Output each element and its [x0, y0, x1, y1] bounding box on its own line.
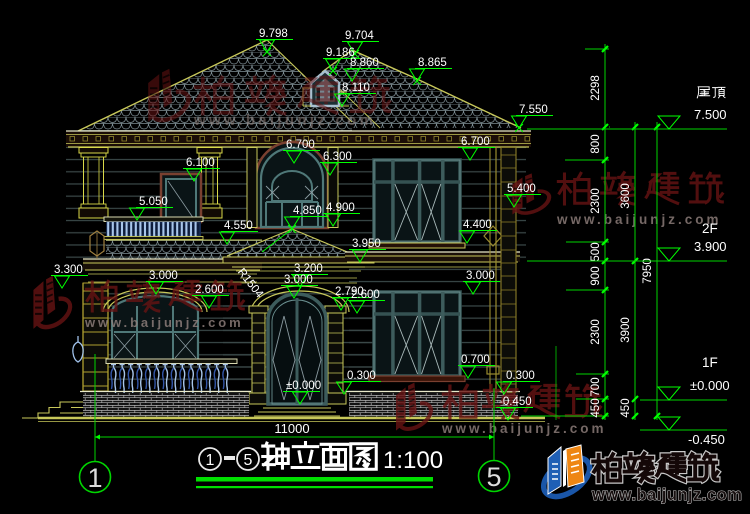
svg-text:3.300: 3.300: [54, 264, 83, 276]
svg-text:-0.450: -0.450: [499, 396, 532, 408]
svg-text:1F: 1F: [702, 355, 718, 370]
svg-text:7950: 7950: [642, 258, 654, 284]
svg-text:www.baijunjz.com: www.baijunjz.com: [193, 112, 376, 129]
svg-text:4.850: 4.850: [293, 205, 322, 217]
svg-text:1: 1: [206, 452, 215, 469]
svg-text:2300: 2300: [590, 188, 602, 214]
svg-text:1:100: 1:100: [383, 447, 443, 474]
svg-text:3.900: 3.900: [694, 239, 727, 254]
svg-text:9.704: 9.704: [345, 30, 374, 42]
svg-text:450: 450: [590, 398, 602, 417]
svg-text:1: 1: [87, 463, 102, 493]
svg-text:3.000: 3.000: [149, 270, 178, 282]
svg-text:3900: 3900: [620, 317, 632, 343]
svg-text:7.500: 7.500: [694, 107, 727, 122]
svg-text:5.050: 5.050: [139, 196, 168, 208]
svg-text:2298: 2298: [590, 75, 602, 101]
svg-text:3.000: 3.000: [466, 270, 495, 282]
svg-text:5: 5: [244, 452, 253, 469]
svg-text:2300: 2300: [590, 319, 602, 345]
svg-text:3600: 3600: [620, 183, 632, 209]
svg-text:±0.000: ±0.000: [286, 380, 321, 392]
svg-text:0.300: 0.300: [506, 370, 535, 382]
svg-text:800: 800: [590, 134, 602, 153]
svg-text:450: 450: [620, 398, 632, 417]
svg-text:11000: 11000: [274, 421, 309, 436]
svg-text:2.600: 2.600: [351, 289, 380, 301]
svg-text:±0.000: ±0.000: [690, 378, 730, 393]
svg-text:2F: 2F: [702, 221, 718, 236]
svg-text:700: 700: [590, 377, 602, 396]
svg-text:4.550: 4.550: [224, 220, 253, 232]
svg-text:-0.450: -0.450: [688, 432, 725, 447]
svg-text:www.baijunjz.com: www.baijunjz.com: [441, 421, 607, 436]
svg-text:www.baijunjz.com: www.baijunjz.com: [591, 486, 742, 504]
svg-text:6.700: 6.700: [461, 136, 490, 148]
svg-text:6.100: 6.100: [186, 157, 215, 169]
svg-text:0.700: 0.700: [461, 354, 490, 366]
svg-text:8.860: 8.860: [350, 57, 379, 69]
svg-text:www.baijunjz.com: www.baijunjz.com: [556, 212, 722, 227]
svg-text:7.550: 7.550: [519, 104, 548, 116]
svg-text:6.700: 6.700: [286, 139, 315, 151]
svg-text:www.baijunjz.com: www.baijunjz.com: [84, 315, 244, 330]
svg-text:3.950: 3.950: [352, 238, 381, 250]
svg-text:500: 500: [590, 242, 602, 261]
svg-text:9.798: 9.798: [259, 28, 288, 40]
svg-text:8.865: 8.865: [418, 57, 447, 69]
svg-text:0.300: 0.300: [347, 370, 376, 382]
svg-text:8.110: 8.110: [342, 82, 370, 94]
svg-text:4.900: 4.900: [326, 202, 355, 214]
svg-text:3.000: 3.000: [284, 274, 313, 286]
svg-text:5.400: 5.400: [507, 183, 536, 195]
svg-text:2.600: 2.600: [195, 284, 224, 296]
svg-text:900: 900: [590, 266, 602, 285]
svg-text:5: 5: [486, 462, 501, 492]
svg-text:6.300: 6.300: [323, 151, 352, 163]
svg-text:4.400: 4.400: [463, 219, 492, 231]
